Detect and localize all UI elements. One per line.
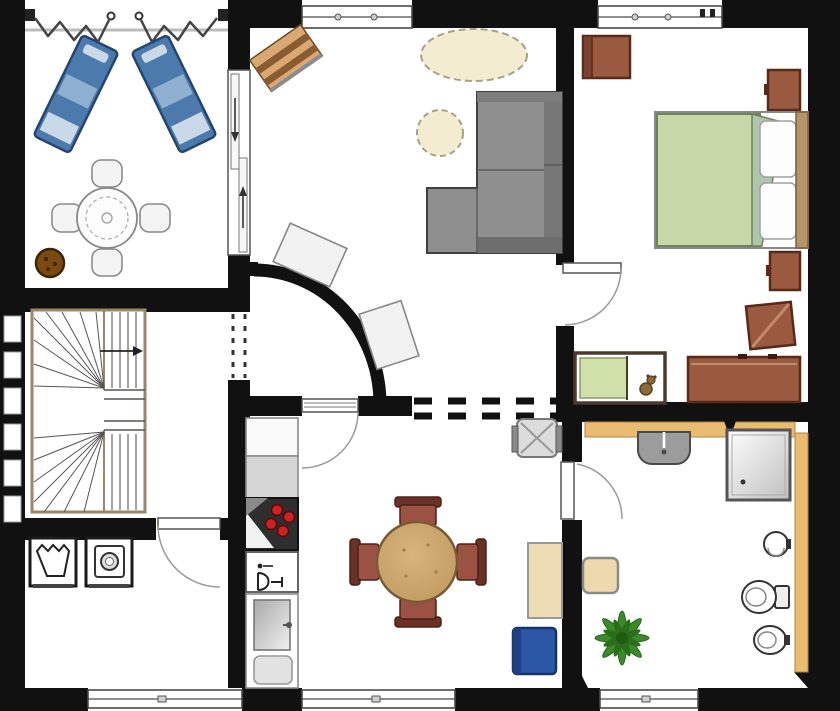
toilet [742,581,789,613]
wash-basin [638,432,690,464]
sliding-terrace-door [228,70,250,255]
worktop [246,456,298,498]
winder-staircase [32,310,145,512]
double-sink [246,594,298,688]
living-room [250,25,562,370]
sun-lounger-left [33,35,118,153]
stool [583,558,618,593]
washing-machine [86,538,132,588]
plant-pot [36,249,64,277]
floor-plan-drawing [0,0,840,711]
dining-set [350,497,486,627]
tiled-ledge-right [795,433,808,672]
terrace-chair [92,160,122,187]
hand-basin [764,532,791,556]
terrace-chair [140,204,170,232]
utility-room [30,538,132,588]
round-dining-table [377,522,457,602]
high-chair [512,419,562,457]
window-bedroom-top [598,6,722,28]
bidet [754,626,790,654]
door-utility [158,518,220,587]
door-living-kitchen [302,399,358,468]
wooden-sideboard [250,25,323,93]
bathroom [583,404,808,672]
shower [727,430,790,500]
pillow [760,183,796,239]
dining-chair [457,539,486,585]
duvet [657,114,760,246]
bedroom [575,36,808,403]
opening-stair-living [228,312,250,380]
laundry-tub [30,538,76,588]
plant [595,611,649,665]
pillow [760,121,796,177]
sun-lounger-right [131,35,216,153]
door-bathroom [561,462,622,519]
curved-wall [254,270,380,404]
terrace-chair [92,249,122,276]
dishwasher [246,552,298,592]
nightstand-bottom [766,252,800,290]
floor-plan [0,0,840,711]
double-bed [655,112,808,248]
nightstand-top [764,70,800,110]
dining-chair [350,539,379,585]
blue-bin [513,628,556,674]
window-bathroom-bottom [600,690,698,708]
headboard [796,112,808,248]
dresser [583,36,630,78]
door-bedroom [563,263,621,325]
oval-rug [421,29,527,81]
long-sideboard [688,354,800,402]
awning-hooks [25,9,228,21]
kitchen-dining [246,418,562,688]
side-cabinet [528,543,562,618]
crib [575,353,665,403]
window-utility-bottom [88,690,242,708]
terrace [25,9,228,277]
terrace-dining-set [52,160,170,276]
round-pouf [417,110,463,156]
window-living-top [302,6,412,28]
corner-stove [246,498,298,550]
opening-living-kitchen-dashed [414,401,556,416]
window-kitchen-bottom [302,690,455,708]
tall-cabinet [246,418,298,456]
open-wardrobe [746,302,795,349]
